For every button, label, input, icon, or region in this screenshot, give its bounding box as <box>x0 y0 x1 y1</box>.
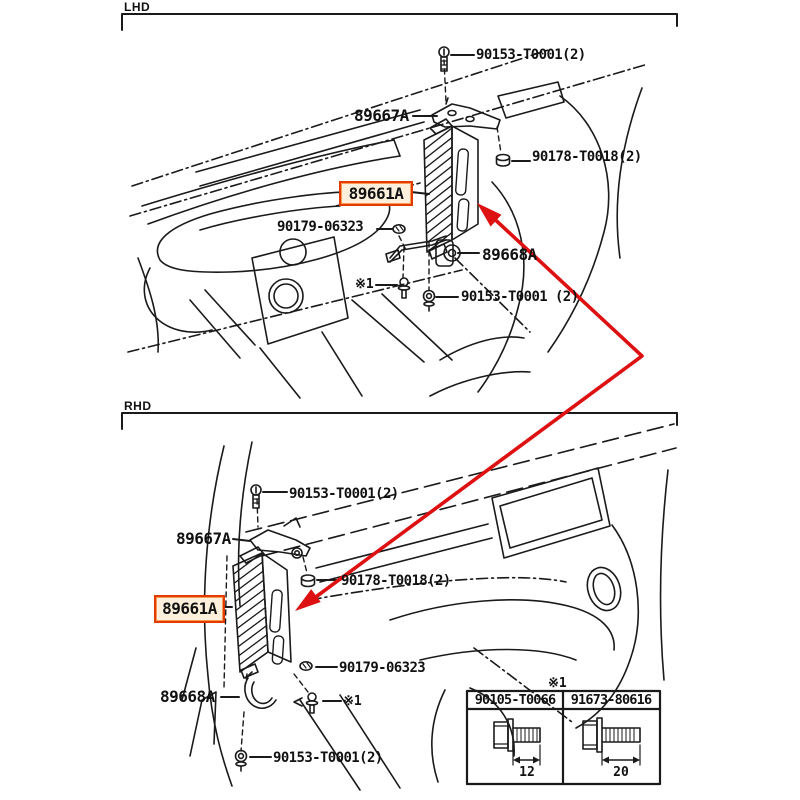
rhd-callout-bracket-89667a[interactable]: 89667A <box>176 531 231 547</box>
rhd-ref-bolt-icon <box>307 693 318 713</box>
rhd-callout-nut-90178[interactable]: 90178-T0018(2) <box>341 574 451 588</box>
legend-length-12: 12 <box>512 766 542 779</box>
rhd-ecu-highlight-box[interactable]: 89661A <box>154 595 225 623</box>
rhd-ref-mark: ※1 <box>343 695 362 708</box>
lhd-bracket-89668a-drawing <box>386 236 460 266</box>
rhd-callout-bracket-89668a[interactable]: 89668A <box>160 689 215 705</box>
rhd-ecu-drawing <box>231 547 291 681</box>
lhd-screw-top-icon <box>439 47 449 71</box>
legend-bolt-12-drawing <box>494 719 540 765</box>
lhd-callout-bracket-89667a[interactable]: 89667A <box>354 108 409 124</box>
rhd-callout-bolt-90179[interactable]: 90179-06323 <box>339 661 425 675</box>
rhd-grommet-90179-icon <box>300 662 312 670</box>
lhd-callout-ecu-89661a: 89661A <box>349 186 404 202</box>
lhd-ref-bolt-icon <box>399 278 410 298</box>
legend-bolt-20-drawing <box>583 718 640 765</box>
lhd-section-label: LHD <box>124 1 150 13</box>
lhd-callout-bolt-90179[interactable]: 90179-06323 <box>277 220 363 234</box>
lhd-ecu-highlight-box[interactable]: 89661A <box>339 181 413 206</box>
lhd-callout-screw-bottom[interactable]: 90153-T0001 (2) <box>461 290 578 304</box>
lhd-dashboard-art <box>128 50 648 398</box>
lhd-screw-bottom-icon <box>424 291 435 312</box>
rhd-frame <box>122 413 677 429</box>
rhd-section-label: RHD <box>124 400 152 412</box>
lhd-ref-mark: ※1 <box>355 278 374 291</box>
rhd-nut-90178-icon <box>302 575 315 587</box>
legend-part-90105[interactable]: 90105-T0066 <box>468 694 562 708</box>
legend-ref-mark: ※1 <box>548 677 567 690</box>
lhd-ecu-drawing <box>424 119 478 259</box>
rhd-callout-screw-top[interactable]: 90153-T0001(2) <box>289 487 399 501</box>
legend-length-20: 20 <box>606 766 636 779</box>
lhd-callout-screw-top[interactable]: 90153-T0001(2) <box>476 48 586 62</box>
lhd-frame <box>122 14 677 30</box>
lhd-grommet-90179-icon <box>393 225 405 233</box>
rhd-callout-screw-bottom[interactable]: 90153-T0001(2) <box>273 751 383 765</box>
lhd-callout-nut-90178[interactable]: 90178-T0018(2) <box>532 150 642 164</box>
rhd-screw-top-icon <box>251 485 261 508</box>
parts-diagram-page: LHD 90153-T0001(2) 89667A 90178-T0018(2)… <box>0 0 800 800</box>
legend-part-91673[interactable]: 91673-80616 <box>564 694 658 708</box>
lhd-nut-90178-icon <box>497 155 510 167</box>
lhd-callout-bracket-89668a[interactable]: 89668A <box>482 247 537 263</box>
rhd-callout-ecu-89661a: 89661A <box>162 601 217 617</box>
rhd-bracket-89668a-drawing <box>245 672 302 708</box>
red-cross-reference-arrow <box>295 203 642 611</box>
rhd-screw-bottom-icon <box>236 751 247 772</box>
